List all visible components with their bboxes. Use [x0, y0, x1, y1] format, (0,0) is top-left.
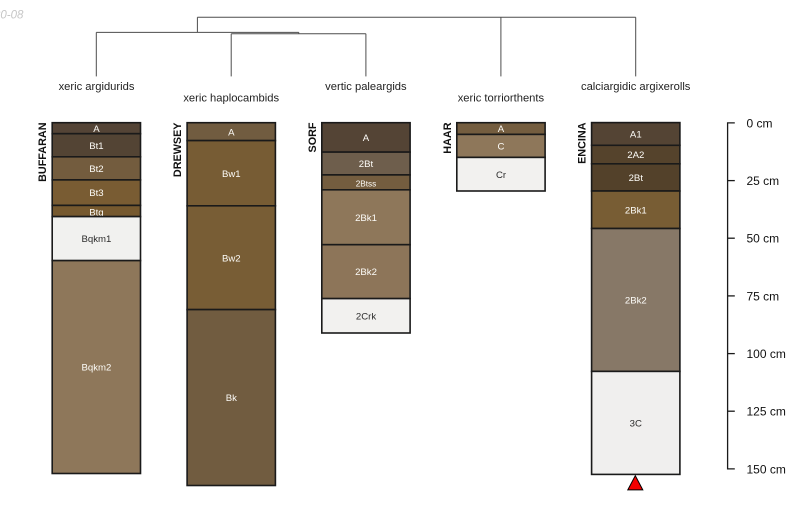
svg-text:2Bk1: 2Bk1 [625, 205, 647, 216]
svg-text:125 cm: 125 cm [747, 405, 786, 419]
svg-text:calciargidic argixerolls: calciargidic argixerolls [581, 81, 691, 93]
svg-text:xeric haplocambids: xeric haplocambids [183, 93, 279, 105]
svg-text:2Crk: 2Crk [356, 311, 376, 322]
svg-text:ENCINA: ENCINA [577, 122, 589, 164]
svg-text:0 cm: 0 cm [747, 116, 773, 130]
svg-text:50 cm: 50 cm [747, 232, 780, 246]
svg-text:xeric argidurids: xeric argidurids [59, 81, 135, 93]
svg-text:Bt2: Bt2 [89, 164, 103, 175]
svg-text:150 cm: 150 cm [747, 462, 786, 476]
svg-text:Bt3: Bt3 [89, 188, 103, 199]
svg-text:Bqkm1: Bqkm1 [81, 234, 111, 245]
svg-text:100 cm: 100 cm [747, 347, 786, 361]
svg-text:Cr: Cr [496, 170, 507, 181]
svg-text:2A2: 2A2 [627, 150, 644, 161]
svg-text:SORF: SORF [307, 122, 319, 152]
svg-text:vertic paleargids: vertic paleargids [325, 81, 407, 93]
svg-text:2Bk2: 2Bk2 [355, 267, 377, 278]
svg-text:Bk: Bk [226, 393, 237, 404]
svg-text:HAAR: HAAR [442, 122, 454, 153]
svg-text:25 cm: 25 cm [747, 174, 780, 188]
svg-text:xeric torriorthents: xeric torriorthents [458, 93, 545, 105]
svg-text:DREWSEY: DREWSEY [172, 122, 184, 177]
svg-text:2Bt: 2Bt [629, 173, 644, 184]
svg-text:2020-08: 2020-08 [0, 10, 24, 22]
svg-text:Bw2: Bw2 [222, 253, 241, 264]
svg-text:2Bk2: 2Bk2 [625, 296, 647, 307]
svg-text:2Bt: 2Bt [359, 159, 374, 170]
svg-text:A: A [228, 127, 235, 138]
svg-text:Bw1: Bw1 [222, 169, 241, 180]
svg-text:Bqkm2: Bqkm2 [81, 363, 111, 374]
svg-text:A: A [498, 124, 505, 135]
svg-text:Bt1: Bt1 [89, 141, 103, 152]
svg-text:C: C [498, 142, 505, 153]
svg-text:75 cm: 75 cm [747, 289, 780, 303]
svg-text:A: A [363, 133, 370, 144]
svg-text:2Btss: 2Btss [356, 180, 376, 189]
svg-text:3C: 3C [630, 419, 642, 430]
svg-text:2Bk1: 2Bk1 [355, 213, 377, 224]
svg-text:BUFFARAN: BUFFARAN [37, 122, 49, 182]
svg-text:A1: A1 [630, 130, 642, 141]
